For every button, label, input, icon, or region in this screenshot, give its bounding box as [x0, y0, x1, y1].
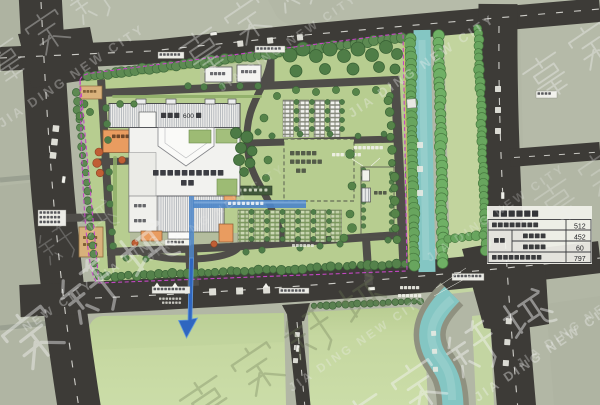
svg-text:600: 600: [183, 113, 194, 120]
svg-text:797: 797: [574, 256, 586, 263]
svg-text:512: 512: [574, 224, 586, 231]
svg-text:60: 60: [576, 246, 584, 253]
svg-text:452: 452: [574, 235, 586, 242]
